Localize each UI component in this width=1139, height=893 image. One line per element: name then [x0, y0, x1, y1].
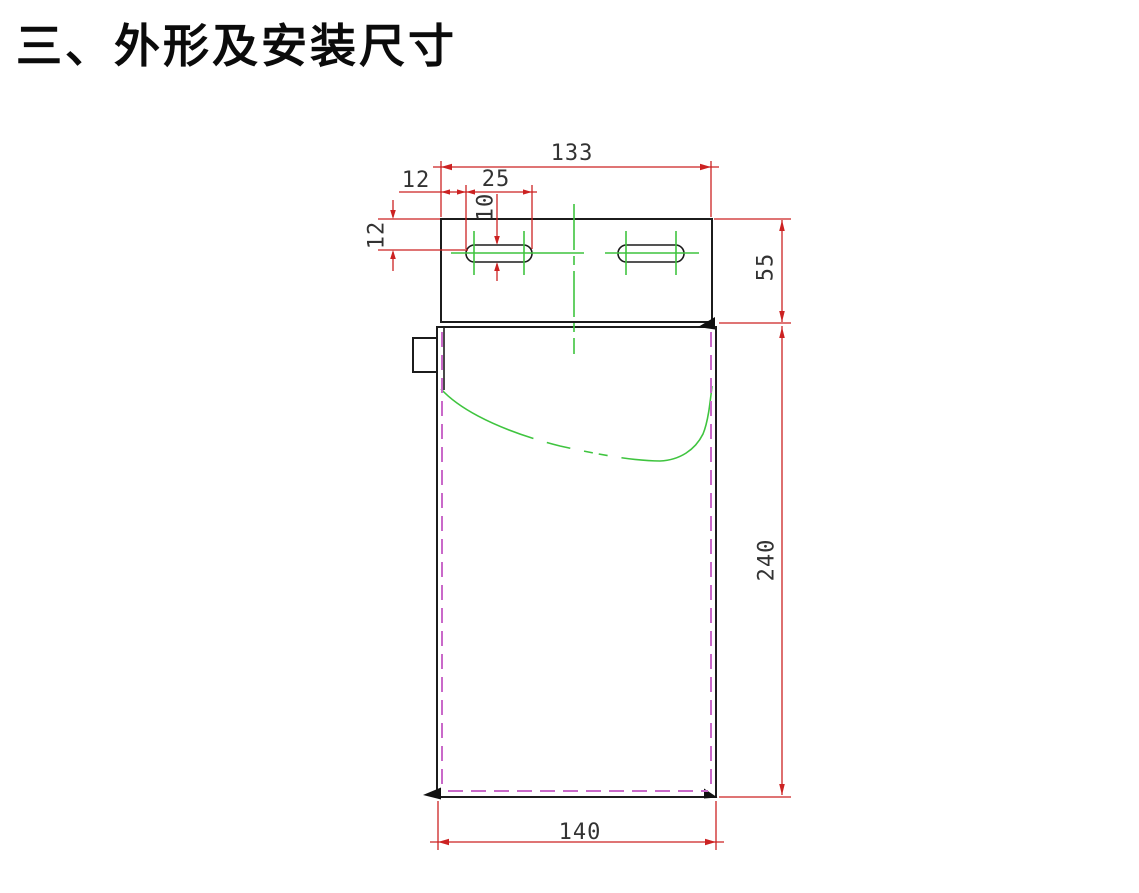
dim-label-25: 25 — [482, 167, 511, 192]
dim-label-140: 140 — [559, 820, 602, 845]
dim-slot-width: 10 — [474, 193, 500, 281]
label-sag-curve — [441, 386, 712, 461]
dim-slot-edge-offset: 12 — [399, 168, 537, 195]
dim-label-12-left: 12 — [365, 221, 390, 250]
body-outline — [437, 327, 716, 797]
dim-label-12-top: 12 — [402, 168, 431, 193]
dim-label-55: 55 — [754, 253, 779, 282]
bracket-outline — [441, 219, 712, 322]
dim-body-width: 140 — [430, 801, 724, 850]
dim-bracket-height: 55 — [714, 219, 791, 322]
side-tab-outline — [413, 338, 437, 372]
dim-label-10: 10 — [474, 193, 499, 222]
dimension-drawing: 133 12 25 10 — [0, 0, 1139, 893]
dim-slot-center-offset: 12 — [365, 200, 469, 271]
centerlines — [441, 204, 712, 461]
corner-wedge-bottom-left — [423, 788, 441, 800]
part-outline — [413, 219, 718, 800]
dim-label-240: 240 — [755, 539, 780, 582]
dim-label-133: 133 — [551, 141, 594, 166]
dim-body-height: 240 — [719, 323, 791, 797]
hidden-lines — [442, 332, 711, 791]
manual-page: 三、外形及安装尺寸 — [0, 0, 1139, 893]
